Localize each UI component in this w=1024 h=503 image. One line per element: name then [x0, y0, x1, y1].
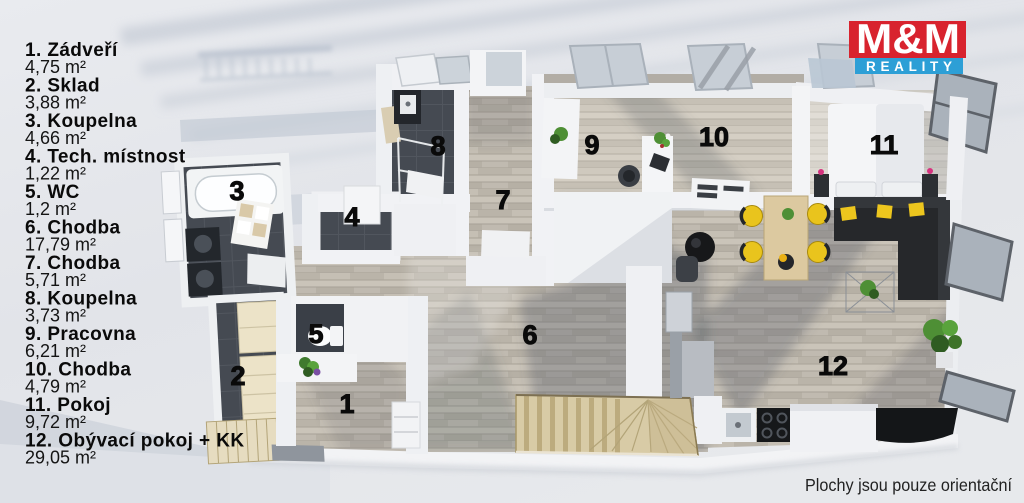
svg-text:Plochy jsou pouze orientační: Plochy jsou pouze orientační [805, 475, 1012, 495]
svg-text:1: 1 [339, 389, 354, 419]
svg-text:5: 5 [308, 319, 323, 349]
svg-text:3,88 m²: 3,88 m² [25, 93, 86, 113]
svg-text:12: 12 [818, 351, 848, 381]
svg-text:1,2 m²: 1,2 m² [25, 199, 76, 219]
svg-text:6: 6 [522, 320, 537, 350]
svg-text:4: 4 [344, 202, 359, 232]
svg-text:9,72 m²: 9,72 m² [25, 412, 86, 432]
svg-text:4,79 m²: 4,79 m² [25, 377, 86, 397]
svg-text:4,66 m²: 4,66 m² [25, 128, 86, 148]
svg-text:M&M: M&M [856, 15, 960, 62]
svg-text:29,05 m²: 29,05 m² [25, 448, 96, 468]
svg-text:17,79 m²: 17,79 m² [25, 235, 96, 255]
svg-text:7: 7 [495, 185, 510, 215]
svg-text:3: 3 [229, 176, 244, 206]
svg-text:10: 10 [699, 122, 729, 152]
svg-text:9: 9 [584, 130, 599, 160]
svg-text:2: 2 [230, 361, 245, 391]
svg-text:4,75 m²: 4,75 m² [25, 57, 86, 77]
svg-text:5,71 m²: 5,71 m² [25, 270, 86, 290]
svg-text:3,73 m²: 3,73 m² [25, 306, 86, 326]
svg-text:8: 8 [430, 131, 445, 161]
svg-text:11: 11 [870, 130, 899, 160]
svg-text:6,21 m²: 6,21 m² [25, 341, 86, 361]
svg-text:1,22 m²: 1,22 m² [25, 164, 86, 184]
